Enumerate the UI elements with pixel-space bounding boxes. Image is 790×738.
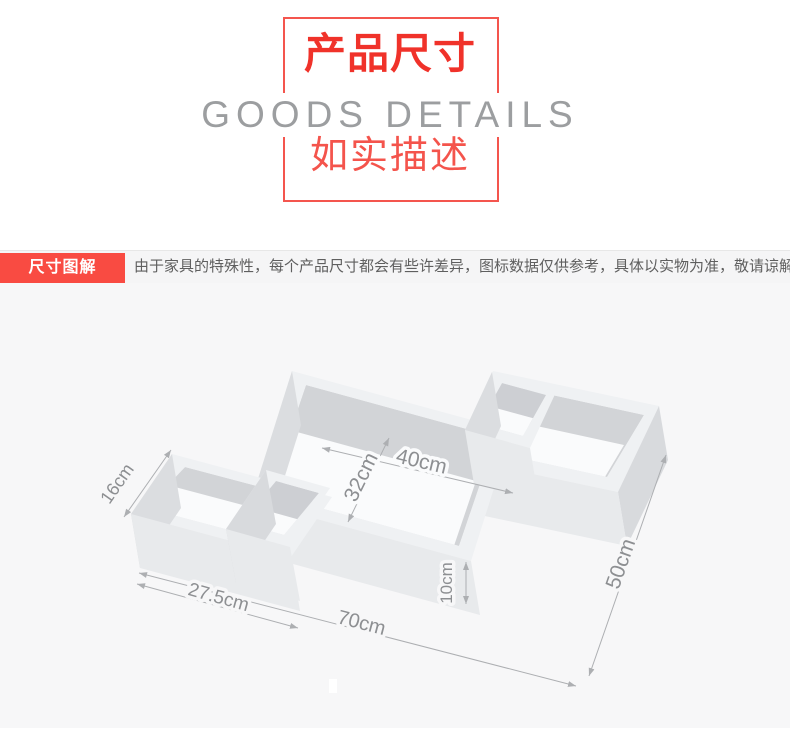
section-bar: 尺寸图解 由于家具的特殊性，每个产品尺寸都会有些许差异，图标数据仅供参考，具体以… [0, 250, 790, 283]
section-label: 尺寸图解 [0, 253, 125, 283]
product-detail-page: 产品尺寸 GOODS DETAILS 如实描述 尺寸图解 由于家具的特殊性，每个… [0, 0, 790, 738]
shelf-dimension-diagram: 16cm 27.5cm 70cm 40cm 32cm 10cm 50cm [0, 283, 790, 728]
dimension-label-total-height: 50cm [602, 536, 641, 592]
shelf-illustration [131, 371, 668, 615]
dimension-label-depth: 16cm [96, 460, 138, 508]
dimension-diagram-area: 16cm 27.5cm 70cm 40cm 32cm 10cm 50cm [0, 283, 790, 728]
watermark-mark [329, 679, 337, 693]
page-title: 产品尺寸 [304, 31, 476, 77]
page-subtitle: 如实描述 [310, 134, 470, 178]
section-description: 由于家具的特殊性，每个产品尺寸都会有些许差异，图标数据仅供参考，具体以实物为准，… [134, 251, 790, 283]
page-title-english: GOODS DETAILS [189, 93, 591, 137]
dimension-label-total-width: 70cm [335, 606, 388, 640]
dimension-label-panel-height: 10cm [437, 562, 456, 604]
